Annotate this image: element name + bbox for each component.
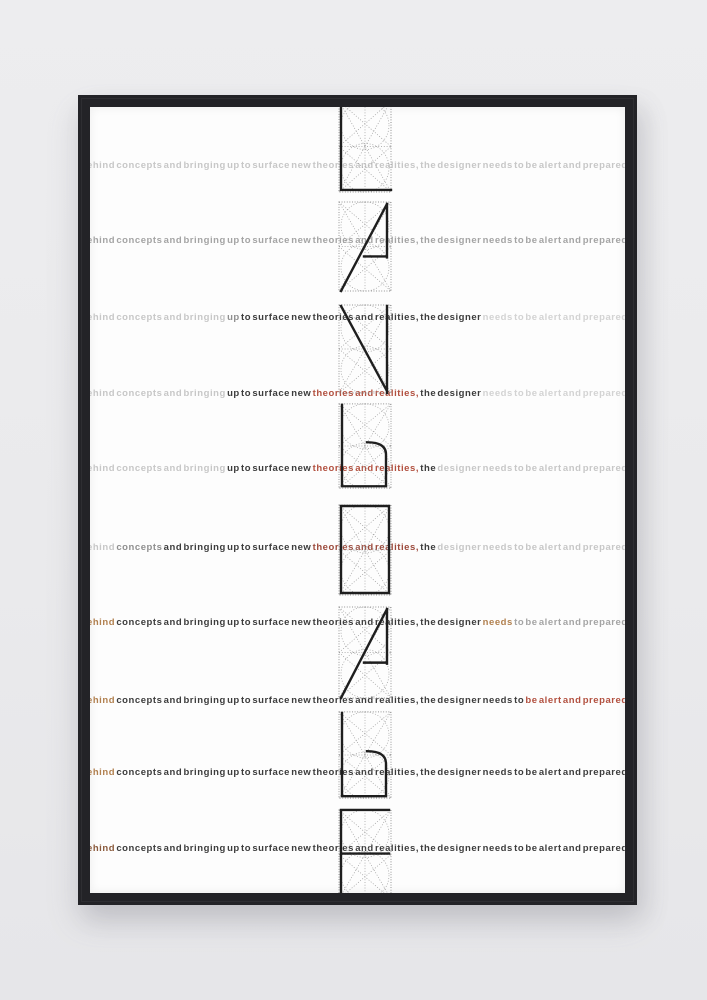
word: surface bbox=[252, 695, 290, 706]
word: surface bbox=[252, 312, 290, 323]
word: prepared bbox=[583, 463, 625, 474]
word: bringing bbox=[183, 235, 225, 246]
word: designer bbox=[437, 542, 481, 553]
word: alert bbox=[539, 767, 562, 778]
poster-frame: ehindconceptsandbringinguptosurfacenewth… bbox=[78, 95, 637, 905]
word: to bbox=[514, 843, 524, 854]
word: to bbox=[241, 388, 251, 399]
word: designer bbox=[437, 767, 481, 778]
word: ehind bbox=[90, 235, 115, 246]
word: and bbox=[164, 312, 183, 323]
word: new bbox=[291, 312, 311, 323]
word: and bbox=[164, 388, 183, 399]
word: be bbox=[525, 617, 537, 628]
letterform-construction-8 bbox=[337, 808, 393, 893]
letterform-construction-7 bbox=[337, 710, 393, 800]
word: needs bbox=[483, 695, 513, 706]
word: alert bbox=[539, 160, 562, 171]
word: up bbox=[227, 235, 240, 246]
word: up bbox=[227, 767, 240, 778]
word: to bbox=[241, 235, 251, 246]
word: designer bbox=[437, 617, 481, 628]
word: alert bbox=[539, 388, 562, 399]
word: ehind bbox=[90, 312, 115, 323]
word: alert bbox=[539, 312, 562, 323]
word: alert bbox=[539, 617, 562, 628]
word: to bbox=[514, 463, 524, 474]
word: up bbox=[227, 843, 240, 854]
word: the bbox=[420, 843, 436, 854]
word: needs bbox=[483, 160, 513, 171]
word: concepts bbox=[116, 388, 162, 399]
word: to bbox=[514, 617, 524, 628]
word: needs bbox=[483, 767, 513, 778]
word: prepared bbox=[583, 160, 625, 171]
word: and bbox=[164, 843, 183, 854]
word: new bbox=[291, 695, 311, 706]
word: ehind bbox=[90, 388, 115, 399]
word: to bbox=[514, 235, 524, 246]
word: new bbox=[291, 235, 311, 246]
word: surface bbox=[252, 160, 290, 171]
word: and bbox=[164, 542, 183, 553]
word: designer bbox=[437, 695, 481, 706]
word: and bbox=[563, 388, 582, 399]
word: concepts bbox=[116, 160, 162, 171]
word: needs bbox=[483, 235, 513, 246]
word: up bbox=[227, 695, 240, 706]
word: alert bbox=[539, 463, 562, 474]
word: alert bbox=[539, 235, 562, 246]
word: designer bbox=[437, 843, 481, 854]
word: surface bbox=[252, 843, 290, 854]
word: alert bbox=[539, 843, 562, 854]
word: to bbox=[514, 388, 524, 399]
word: to bbox=[241, 160, 251, 171]
construction-grid bbox=[339, 505, 391, 595]
word: new bbox=[291, 542, 311, 553]
word: needs bbox=[483, 388, 513, 399]
word: to bbox=[241, 617, 251, 628]
word: bringing bbox=[183, 388, 225, 399]
word: new bbox=[291, 160, 311, 171]
word: the bbox=[420, 617, 436, 628]
word: surface bbox=[252, 617, 290, 628]
word: be bbox=[525, 312, 537, 323]
word: the bbox=[420, 235, 436, 246]
letterform-construction-5 bbox=[337, 503, 393, 597]
word: needs bbox=[483, 843, 513, 854]
letterform-construction-4 bbox=[337, 402, 393, 490]
word: needs bbox=[483, 617, 513, 628]
word: bringing bbox=[183, 695, 225, 706]
word: ehind bbox=[90, 767, 115, 778]
letter-stroke bbox=[341, 306, 387, 393]
word: and bbox=[164, 235, 183, 246]
word: surface bbox=[252, 463, 290, 474]
word: to bbox=[514, 542, 524, 553]
word: prepared bbox=[583, 767, 625, 778]
word: new bbox=[291, 617, 311, 628]
word: new bbox=[291, 463, 311, 474]
word: designer bbox=[437, 312, 481, 323]
word: concepts bbox=[116, 843, 162, 854]
word: designer bbox=[437, 235, 481, 246]
word: concepts bbox=[116, 542, 162, 553]
construction-grid bbox=[339, 107, 391, 192]
word: prepared bbox=[583, 312, 625, 323]
word: the bbox=[420, 312, 436, 323]
word: surface bbox=[252, 767, 290, 778]
letterform-construction-6 bbox=[337, 605, 393, 700]
word: new bbox=[291, 767, 311, 778]
word: the bbox=[420, 767, 436, 778]
word: bringing bbox=[183, 617, 225, 628]
word: to bbox=[514, 160, 524, 171]
word: up bbox=[227, 542, 240, 553]
word: be bbox=[525, 767, 537, 778]
poster: ehindconceptsandbringinguptosurfacenewth… bbox=[90, 107, 625, 893]
word: up bbox=[227, 388, 240, 399]
word: up bbox=[227, 312, 240, 323]
word: the bbox=[420, 542, 436, 553]
word: surface bbox=[252, 388, 290, 399]
word: and bbox=[164, 695, 183, 706]
word: and bbox=[563, 463, 582, 474]
word: to bbox=[241, 312, 251, 323]
word: ehind bbox=[90, 843, 115, 854]
word: be bbox=[525, 463, 537, 474]
word: up bbox=[227, 617, 240, 628]
word: ehind bbox=[90, 617, 115, 628]
word: and bbox=[164, 617, 183, 628]
word: alert bbox=[539, 542, 562, 553]
word: and bbox=[164, 767, 183, 778]
word: to bbox=[241, 695, 251, 706]
word: and bbox=[563, 843, 582, 854]
word: the bbox=[420, 463, 436, 474]
word: concepts bbox=[116, 312, 162, 323]
word: alert bbox=[539, 695, 562, 706]
word: surface bbox=[252, 235, 290, 246]
word: needs bbox=[483, 542, 513, 553]
word: designer bbox=[437, 388, 481, 399]
word: up bbox=[227, 160, 240, 171]
word: the bbox=[420, 160, 436, 171]
word: and bbox=[563, 235, 582, 246]
word: prepared bbox=[583, 695, 625, 706]
word: be bbox=[525, 542, 537, 553]
word: ehind bbox=[90, 160, 115, 171]
word: prepared bbox=[583, 843, 625, 854]
word: and bbox=[164, 463, 183, 474]
word: surface bbox=[252, 542, 290, 553]
word: to bbox=[241, 542, 251, 553]
word: the bbox=[420, 695, 436, 706]
word: be bbox=[525, 235, 537, 246]
word: bringing bbox=[183, 463, 225, 474]
word: bringing bbox=[183, 160, 225, 171]
construction-grid bbox=[339, 810, 391, 893]
word: concepts bbox=[116, 695, 162, 706]
word: prepared bbox=[583, 388, 625, 399]
letter-stroke bbox=[342, 405, 386, 486]
word: and bbox=[164, 160, 183, 171]
word: and bbox=[563, 160, 582, 171]
word: designer bbox=[437, 160, 481, 171]
word: and bbox=[563, 767, 582, 778]
word: concepts bbox=[116, 767, 162, 778]
word: and bbox=[563, 312, 582, 323]
word: ehind bbox=[90, 542, 115, 553]
word: prepared bbox=[583, 235, 625, 246]
word: ehind bbox=[90, 463, 115, 474]
letterform-construction-2 bbox=[337, 200, 393, 293]
word: the bbox=[420, 388, 436, 399]
word: and bbox=[563, 617, 582, 628]
word: up bbox=[227, 463, 240, 474]
word: needs bbox=[483, 312, 513, 323]
word: be bbox=[525, 843, 537, 854]
word: to bbox=[514, 312, 524, 323]
word: to bbox=[514, 767, 524, 778]
word: be bbox=[525, 388, 537, 399]
word: prepared bbox=[583, 542, 625, 553]
word: concepts bbox=[116, 463, 162, 474]
word: concepts bbox=[116, 235, 162, 246]
word: bringing bbox=[183, 312, 225, 323]
word: be bbox=[525, 160, 537, 171]
letterform-construction-1 bbox=[337, 107, 393, 194]
word: new bbox=[291, 843, 311, 854]
word: ehind bbox=[90, 695, 115, 706]
word: to bbox=[241, 767, 251, 778]
word: designer bbox=[437, 463, 481, 474]
word: prepared bbox=[583, 617, 625, 628]
letterform-construction-3 bbox=[337, 303, 393, 395]
word: to bbox=[241, 463, 251, 474]
framed-poster-photo: ehindconceptsandbringinguptosurfacenewth… bbox=[0, 0, 707, 1000]
word: be bbox=[525, 695, 537, 706]
word: and bbox=[563, 542, 582, 553]
word: new bbox=[291, 388, 311, 399]
word: bringing bbox=[183, 843, 225, 854]
word: to bbox=[514, 695, 524, 706]
letter-stroke bbox=[342, 713, 386, 796]
word: bringing bbox=[183, 767, 225, 778]
word: to bbox=[241, 843, 251, 854]
word: concepts bbox=[116, 617, 162, 628]
word: and bbox=[563, 695, 582, 706]
word: needs bbox=[483, 463, 513, 474]
word: bringing bbox=[183, 542, 225, 553]
